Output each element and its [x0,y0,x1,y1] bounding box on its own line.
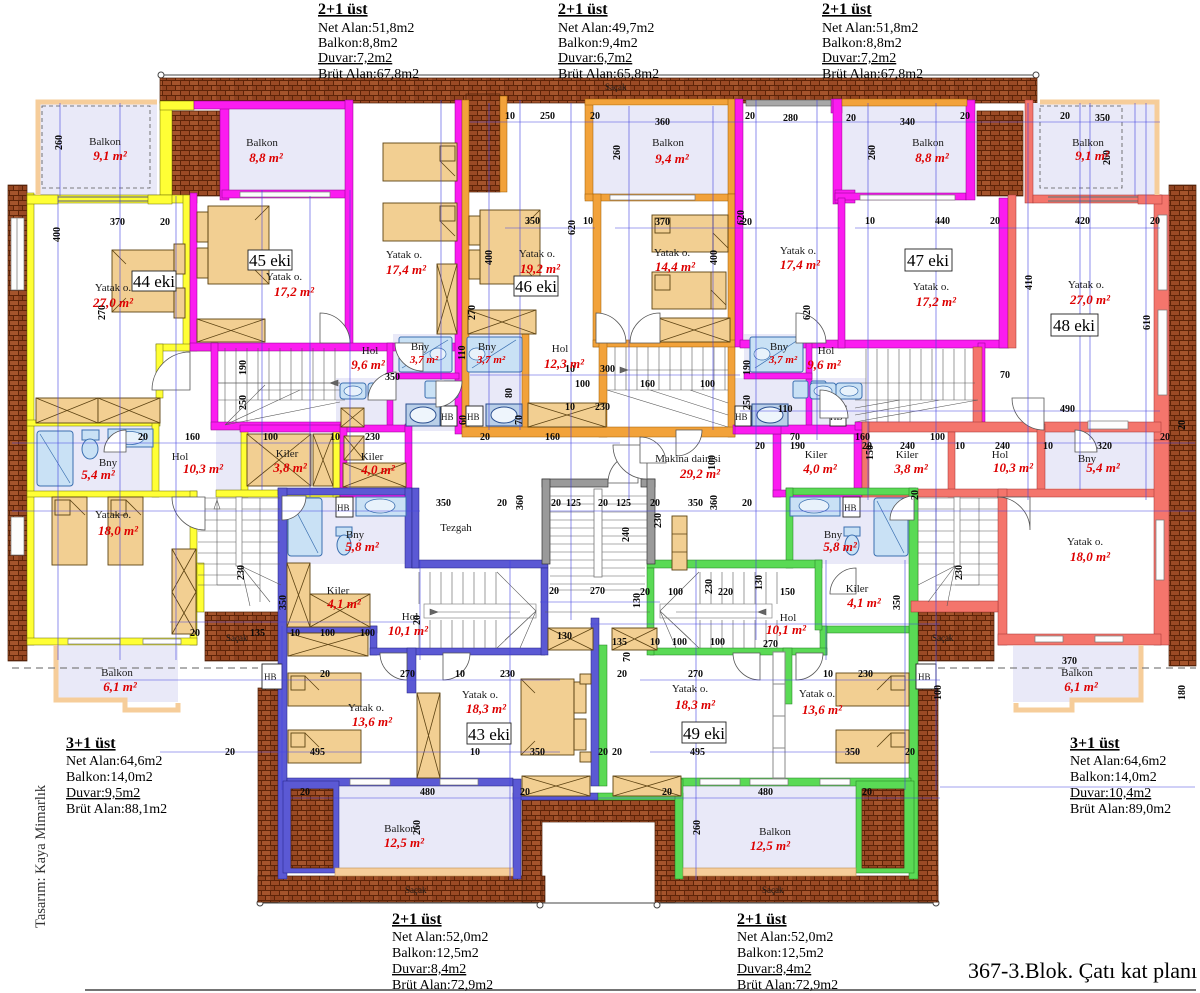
svg-text:350: 350 [525,216,540,227]
svg-text:Yatak o.: Yatak o. [799,688,835,700]
svg-text:3+1 üst: 3+1 üst [1070,735,1120,752]
svg-text:190: 190 [238,360,249,375]
svg-text:367-3.Blok. Çatı kat planı: 367-3.Blok. Çatı kat planı [968,958,1197,983]
svg-text:100: 100 [263,432,278,443]
svg-text:Saçak: Saçak [226,633,248,643]
svg-text:10,1 m²: 10,1 m² [766,622,807,637]
svg-text:420: 420 [1075,216,1090,227]
svg-text:Brüt Alan:65,8m2: Brüt Alan:65,8m2 [558,67,659,82]
svg-text:230: 230 [236,565,247,580]
svg-text:370: 370 [110,217,125,228]
svg-text:18,3 m²: 18,3 m² [466,701,507,716]
svg-text:100: 100 [320,628,335,639]
svg-text:370: 370 [655,217,670,228]
svg-text:495: 495 [310,747,325,758]
svg-text:2+1 üst: 2+1 üst [318,1,368,18]
svg-text:3,8 m²: 3,8 m² [893,461,929,476]
svg-text:Brüt Alan:67,8m2: Brüt Alan:67,8m2 [318,67,419,82]
svg-text:Balkon:12,5m2: Balkon:12,5m2 [392,946,479,961]
svg-text:Yatak o.: Yatak o. [519,248,555,260]
svg-text:110: 110 [457,346,468,360]
svg-text:220: 220 [718,587,733,598]
svg-text:160: 160 [640,379,655,390]
svg-text:Bny: Bny [770,341,789,353]
svg-text:230: 230 [653,513,664,528]
svg-text:13,6 m²: 13,6 m² [352,714,393,729]
svg-text:190: 190 [790,441,805,452]
svg-text:20: 20 [755,441,765,452]
svg-text:130: 130 [557,631,572,642]
svg-text:3,8 m²: 3,8 m² [272,460,308,475]
svg-text:Balkon:14,0m2: Balkon:14,0m2 [66,770,153,785]
svg-text:8,8 m²: 8,8 m² [915,150,950,165]
svg-text:260: 260 [612,145,623,160]
svg-text:135: 135 [612,637,627,648]
svg-text:Duvar:10,4m2: Duvar:10,4m2 [1070,786,1151,801]
svg-text:20: 20 [662,787,672,798]
svg-text:27,0 m²: 27,0 m² [1069,292,1111,307]
svg-text:10: 10 [290,628,300,639]
svg-text:Balkon: Balkon [101,667,133,679]
svg-text:440: 440 [935,216,950,227]
svg-text:270: 270 [400,669,415,680]
svg-text:13,6 m²: 13,6 m² [802,702,843,717]
svg-text:20: 20 [960,111,970,122]
svg-text:Yatak o.: Yatak o. [1067,536,1103,548]
svg-text:3+1 üst: 3+1 üst [66,735,116,752]
svg-text:100: 100 [575,379,590,390]
svg-text:490: 490 [1060,404,1075,415]
svg-text:10: 10 [955,441,965,452]
svg-text:260: 260 [867,145,878,160]
svg-text:Duvar:8,4m2: Duvar:8,4m2 [392,962,466,977]
svg-text:340: 340 [900,117,915,128]
svg-text:620: 620 [736,210,747,225]
svg-text:Duvar:9,5m2: Duvar:9,5m2 [66,786,140,801]
svg-text:190: 190 [742,360,753,375]
svg-text:18,3 m²: 18,3 m² [675,697,716,712]
svg-text:100: 100 [933,685,944,700]
svg-text:Net Alan:64,6m2: Net Alan:64,6m2 [1070,754,1166,769]
svg-text:5,8 m²: 5,8 m² [345,539,380,554]
svg-text:10,3 m²: 10,3 m² [183,461,224,476]
svg-text:70: 70 [622,652,633,662]
svg-text:6,1 m²: 6,1 m² [1064,679,1099,694]
svg-text:400: 400 [709,250,720,265]
svg-text:Hol: Hol [402,611,419,623]
svg-text:Brüt Alan:88,1m2: Brüt Alan:88,1m2 [66,802,167,817]
svg-text:20: 20 [590,111,600,122]
svg-text:400: 400 [484,250,495,265]
svg-text:9,6 m²: 9,6 m² [807,357,842,372]
svg-text:20: 20 [1160,432,1170,443]
svg-text:20: 20 [551,498,561,509]
svg-text:100: 100 [668,587,683,598]
svg-text:45 eki: 45 eki [249,251,291,270]
svg-text:6,1 m²: 6,1 m² [103,679,138,694]
svg-text:Yatak o.: Yatak o. [780,245,816,257]
svg-text:Kiler: Kiler [805,449,828,461]
svg-text:270: 270 [467,305,478,320]
svg-text:12,5 m²: 12,5 m² [750,838,791,853]
svg-text:43 eki: 43 eki [468,725,510,744]
svg-text:12,3 m²: 12,3 m² [544,356,585,371]
svg-text:4,1 m²: 4,1 m² [326,596,362,611]
svg-text:70: 70 [514,415,525,425]
svg-text:48 eki: 48 eki [1053,316,1095,335]
svg-text:Net Alan:64,6m2: Net Alan:64,6m2 [66,754,162,769]
svg-text:10: 10 [565,402,575,413]
svg-text:10,3 m²: 10,3 m² [993,460,1034,475]
svg-text:410: 410 [1024,275,1035,290]
svg-text:12,5 m²: 12,5 m² [384,835,425,850]
svg-text:250: 250 [742,395,753,410]
svg-text:495: 495 [690,747,705,758]
svg-text:350: 350 [1095,113,1110,124]
svg-text:9,6 m²: 9,6 m² [351,357,386,372]
svg-text:27,0 m²: 27,0 m² [92,295,134,310]
svg-text:Brüt Alan:67,8m2: Brüt Alan:67,8m2 [822,67,923,82]
svg-text:130: 130 [754,575,765,590]
svg-text:Balkon:8,8m2: Balkon:8,8m2 [822,36,902,51]
svg-text:2+1 üst: 2+1 üst [737,911,787,928]
svg-text:230: 230 [704,579,715,594]
svg-text:17,2 m²: 17,2 m² [916,294,957,309]
svg-text:320: 320 [1097,441,1112,452]
svg-text:Tasarım: Kaya Mimarlık: Tasarım: Kaya Mimarlık [33,784,49,928]
svg-text:230: 230 [858,669,873,680]
svg-text:125: 125 [566,498,581,509]
svg-text:Yatak o.: Yatak o. [672,683,708,695]
svg-text:350: 350 [436,498,451,509]
svg-text:160: 160 [545,432,560,443]
svg-text:100: 100 [930,432,945,443]
svg-text:17,4 m²: 17,4 m² [780,257,821,272]
svg-text:20: 20 [598,498,608,509]
svg-text:Balkon:8,8m2: Balkon:8,8m2 [318,36,398,51]
svg-text:5,4 m²: 5,4 m² [81,467,116,482]
svg-text:100: 100 [672,637,687,648]
svg-text:20: 20 [497,498,507,509]
svg-text:20: 20 [650,498,660,509]
svg-text:Kiler: Kiler [846,583,869,595]
svg-text:20: 20 [990,216,1000,227]
svg-text:29,2 m²: 29,2 m² [679,466,721,481]
svg-text:250: 250 [540,111,555,122]
svg-text:20: 20 [1150,216,1160,227]
svg-text:3,7 m²: 3,7 m² [409,354,439,366]
svg-text:Balkon: Balkon [246,137,278,149]
svg-text:20: 20 [225,747,235,758]
svg-text:Tezgah: Tezgah [440,522,472,534]
svg-text:Yatak o.: Yatak o. [462,689,498,701]
svg-text:100: 100 [360,628,375,639]
svg-text:5,8 m²: 5,8 m² [823,539,858,554]
svg-text:HB: HB [264,672,277,682]
svg-text:4,0 m²: 4,0 m² [802,461,838,476]
svg-text:180: 180 [1177,685,1188,700]
svg-text:HB: HB [918,672,931,682]
svg-text:20: 20 [549,586,559,597]
svg-text:350: 350 [845,747,860,758]
svg-text:10: 10 [470,747,480,758]
svg-text:Bny: Bny [478,341,497,353]
svg-text:Balkon: Balkon [912,137,944,149]
svg-text:20: 20 [138,432,148,443]
svg-text:240: 240 [621,527,632,542]
svg-text:350: 350 [688,498,703,509]
svg-text:20: 20 [1177,420,1188,430]
svg-text:20: 20 [190,628,200,639]
svg-text:350: 350 [278,595,289,610]
svg-text:620: 620 [567,220,578,235]
svg-text:4,1 m²: 4,1 m² [846,595,882,610]
svg-text:Balkon: Balkon [89,136,121,148]
svg-text:9,1 m²: 9,1 m² [93,148,128,163]
svg-text:300: 300 [600,364,615,375]
svg-text:Yatak o.: Yatak o. [1068,279,1104,291]
svg-text:10: 10 [865,216,875,227]
svg-text:Makina dairesi: Makina dairesi [655,453,721,465]
svg-text:20: 20 [300,787,310,798]
svg-text:Yatak o.: Yatak o. [95,282,131,294]
svg-text:270: 270 [688,669,703,680]
svg-text:Duvar:6,7m2: Duvar:6,7m2 [558,51,632,66]
svg-text:Brüt Alan:72,9m2: Brüt Alan:72,9m2 [737,978,838,993]
svg-text:Yatak o.: Yatak o. [348,702,384,714]
svg-text:10: 10 [330,432,340,443]
svg-text:20: 20 [520,787,530,798]
svg-text:350: 350 [385,372,400,383]
svg-text:Yatak o.: Yatak o. [386,249,422,261]
svg-text:2+1 üst: 2+1 üst [558,1,608,18]
svg-text:20: 20 [742,498,752,509]
svg-text:5,4 m²: 5,4 m² [1086,460,1121,475]
svg-text:20: 20 [617,669,627,680]
svg-text:100: 100 [710,637,725,648]
svg-text:260: 260 [692,820,703,835]
svg-text:100: 100 [700,379,715,390]
svg-text:4,0 m²: 4,0 m² [360,462,396,477]
svg-text:Net Alan:51,8m2: Net Alan:51,8m2 [318,21,414,36]
svg-text:Balkon:12,5m2: Balkon:12,5m2 [737,946,824,961]
svg-text:Duvar:7,2m2: Duvar:7,2m2 [318,51,392,66]
svg-text:44 eki: 44 eki [133,272,175,291]
svg-text:230: 230 [954,565,965,580]
svg-text:10: 10 [1043,441,1053,452]
svg-text:Net Alan:49,7m2: Net Alan:49,7m2 [558,21,654,36]
svg-text:60: 60 [458,415,469,425]
svg-text:80: 80 [504,388,515,398]
svg-text:47 eki: 47 eki [907,251,949,270]
svg-text:10: 10 [455,669,465,680]
svg-text:Net Alan:52,0m2: Net Alan:52,0m2 [737,930,833,945]
svg-text:260: 260 [54,135,65,150]
svg-text:400: 400 [52,227,63,242]
svg-text:Balkon: Balkon [652,137,684,149]
svg-text:HB: HB [735,412,748,422]
svg-text:18,0 m²: 18,0 m² [1070,549,1111,564]
svg-text:46 eki: 46 eki [515,277,557,296]
svg-text:Saçak: Saçak [762,885,784,895]
svg-text:360: 360 [709,495,720,510]
svg-text:370: 370 [1062,656,1077,667]
svg-text:270: 270 [590,586,605,597]
svg-text:Balkon:9,4m2: Balkon:9,4m2 [558,36,638,51]
svg-text:620: 620 [802,305,813,320]
svg-text:10: 10 [650,637,660,648]
svg-text:250: 250 [238,395,249,410]
svg-text:Net Alan:52,0m2: Net Alan:52,0m2 [392,930,488,945]
svg-text:480: 480 [758,787,773,798]
svg-text:18,0 m²: 18,0 m² [98,523,139,538]
svg-text:Brüt Alan:89,0m2: Brüt Alan:89,0m2 [1070,802,1171,817]
svg-text:230: 230 [365,432,380,443]
svg-text:480: 480 [420,787,435,798]
svg-text:Balkon: Balkon [384,823,416,835]
svg-text:Yatak o.: Yatak o. [95,509,131,521]
svg-text:130: 130 [632,593,643,608]
svg-text:Kiler: Kiler [896,449,919,461]
svg-text:Saçak: Saçak [605,82,627,92]
svg-text:3,7 m²: 3,7 m² [476,354,506,366]
svg-text:150: 150 [780,587,795,598]
svg-text:Hol: Hol [818,345,835,357]
svg-text:360: 360 [515,495,526,510]
svg-text:10,1 m²: 10,1 m² [388,623,429,638]
svg-text:49 eki: 49 eki [683,724,725,743]
svg-text:17,2 m²: 17,2 m² [274,284,315,299]
svg-text:20: 20 [612,747,622,758]
svg-text:280: 280 [783,113,798,124]
svg-text:230: 230 [595,402,610,413]
svg-text:19,2 m²: 19,2 m² [520,261,561,276]
svg-text:10: 10 [583,216,593,227]
svg-text:8,8 m²: 8,8 m² [249,150,284,165]
svg-text:10: 10 [505,111,515,122]
svg-text:Yatak o.: Yatak o. [654,247,690,259]
svg-text:135: 135 [250,628,265,639]
svg-text:2+1 üst: 2+1 üst [822,1,872,18]
svg-text:2+1 üst: 2+1 üst [392,911,442,928]
svg-text:Hol: Hol [362,345,379,357]
svg-text:160: 160 [185,432,200,443]
svg-text:Balkon: Balkon [1061,667,1093,679]
svg-text:10: 10 [823,669,833,680]
svg-text:Balkon:14,0m2: Balkon:14,0m2 [1070,770,1157,785]
svg-text:20: 20 [745,111,755,122]
svg-text:HB: HB [441,412,454,422]
svg-text:360: 360 [655,117,670,128]
svg-text:20: 20 [862,787,872,798]
svg-text:Net Alan:51,8m2: Net Alan:51,8m2 [822,21,918,36]
svg-text:20: 20 [905,747,915,758]
svg-text:Duvar:7,2m2: Duvar:7,2m2 [822,51,896,66]
svg-text:20: 20 [910,490,921,500]
svg-text:HB: HB [337,503,350,513]
svg-text:Hol: Hol [552,343,569,355]
svg-text:Bny: Bny [411,341,430,353]
svg-text:Yatak o.: Yatak o. [913,281,949,293]
svg-text:20: 20 [598,747,608,758]
svg-text:610: 610 [1142,315,1153,330]
svg-text:70: 70 [1000,370,1010,381]
svg-text:20: 20 [480,432,490,443]
svg-text:Saçak: Saçak [405,885,427,895]
svg-text:20: 20 [160,217,170,228]
svg-text:3,7 m²: 3,7 m² [768,354,798,366]
svg-text:230: 230 [500,669,515,680]
svg-text:350: 350 [892,595,903,610]
svg-text:9,1 m²: 9,1 m² [1075,148,1110,163]
svg-text:17,4 m²: 17,4 m² [386,262,427,277]
svg-text:9,4 m²: 9,4 m² [655,151,690,166]
svg-text:14,4 m²: 14,4 m² [655,259,696,274]
svg-text:Balkon: Balkon [759,826,791,838]
svg-text:Kiler: Kiler [276,448,299,460]
svg-text:HB: HB [844,503,857,513]
svg-text:Yatak o.: Yatak o. [266,271,302,283]
svg-text:Saçak: Saçak [932,633,954,643]
svg-text:110: 110 [778,404,792,415]
svg-text:20: 20 [320,669,330,680]
svg-text:Duvar:8,4m2: Duvar:8,4m2 [737,962,811,977]
svg-text:20: 20 [1060,111,1070,122]
svg-text:270: 270 [763,639,778,650]
svg-text:150: 150 [865,445,876,460]
svg-text:20: 20 [846,113,856,124]
svg-text:125: 125 [616,498,631,509]
svg-text:350: 350 [530,747,545,758]
svg-text:Brüt Alan:72,9m2: Brüt Alan:72,9m2 [392,978,493,993]
